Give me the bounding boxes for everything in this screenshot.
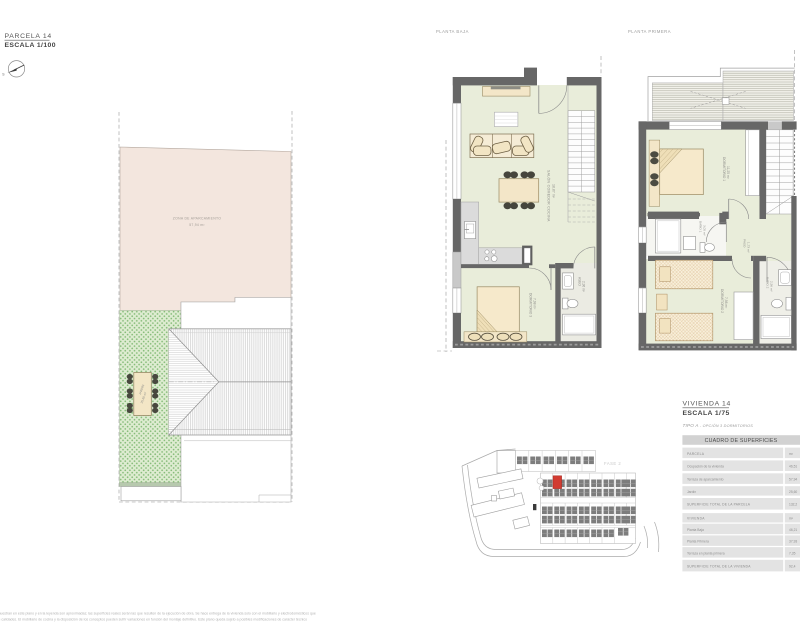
svg-text:57,94 m²: 57,94 m² — [189, 223, 205, 227]
svg-text:7,98 m²: 7,98 m² — [533, 298, 537, 310]
svg-text:DORMITORIO 2: DORMITORIO 2 — [720, 289, 724, 313]
svg-text:FASE 2: FASE 2 — [604, 461, 621, 466]
svg-text:Planta Primera: Planta Primera — [687, 540, 709, 544]
svg-text:7,98 m²: 7,98 m² — [724, 297, 728, 309]
svg-text:TIPO A - OPCIÓN 3 DORMITORIOS: TIPO A - OPCIÓN 3 DORMITORIOS — [683, 423, 754, 428]
svg-text:3,05 m²: 3,05 m² — [703, 225, 707, 236]
svg-text:VIVIENDA 14: VIVIENDA 14 — [683, 401, 732, 408]
svg-text:46,21: 46,21 — [789, 528, 797, 532]
svg-text:SUPERFICIE TOTAL DE LA PARCELA: SUPERFICIE TOTAL DE LA PARCELA — [687, 503, 751, 507]
svg-text:25,60: 25,60 — [789, 490, 797, 494]
svg-text:morial de calidades. El mobili: morial de calidades. El mobiliario de co… — [0, 618, 307, 622]
svg-text:Ocupación de la vivienda: Ocupación de la vivienda — [687, 465, 724, 469]
svg-text:SALÓN COMEDOR COCINA: SALÓN COMEDOR COCINA — [547, 170, 552, 222]
svg-text:DORMITORIO 3: DORMITORIO 3 — [529, 293, 533, 317]
svg-text:VIVIENDA: VIVIENDA — [687, 517, 705, 521]
svg-text:Jardín: Jardín — [687, 490, 696, 494]
svg-text:92,4: 92,4 — [789, 564, 796, 568]
svg-text:Terraza en planta primera: Terraza en planta primera — [687, 551, 725, 555]
svg-text:CUADRO DE SUPERFICIES: CUADRO DE SUPERFICIES — [705, 438, 778, 444]
svg-text:PARCELA 14: PARCELA 14 — [5, 33, 52, 40]
svg-text:que se muestran en este plano: que se muestran en este plano y en la le… — [0, 612, 316, 616]
svg-text:2,56 m²: 2,56 m² — [770, 281, 774, 292]
svg-text:46,51: 46,51 — [789, 465, 797, 469]
svg-text:Terraza de aparcamiento: Terraza de aparcamiento — [687, 478, 724, 482]
svg-text:132,2: 132,2 — [789, 503, 797, 507]
svg-text:PARCELA: PARCELA — [687, 452, 705, 456]
svg-text:18,87 m²: 18,87 m² — [552, 184, 556, 199]
svg-text:ASEO: ASEO — [578, 277, 582, 286]
svg-text:SUPERFICIE TOTAL DE LA VIVIEND: SUPERFICIE TOTAL DE LA VIVIENDA — [687, 564, 751, 568]
svg-text:57,94: 57,94 — [789, 478, 797, 482]
svg-text:11,25 m²: 11,25 m² — [726, 166, 730, 180]
svg-text:S: S — [2, 72, 5, 76]
svg-text:7,35: 7,35 — [789, 551, 796, 555]
svg-text:PASO: PASO — [743, 239, 747, 248]
svg-text:PLANTA PRIMERA: PLANTA PRIMERA — [628, 29, 671, 34]
svg-text:1,73 m²: 1,73 m² — [747, 242, 751, 253]
svg-text:DORMITORIO 1: DORMITORIO 1 — [722, 157, 726, 181]
svg-text:ESCALA 1/75: ESCALA 1/75 — [683, 410, 730, 417]
svg-text:37,93: 37,93 — [789, 540, 797, 544]
svg-text:ZONA DE APARCAMIENTO: ZONA DE APARCAMIENTO — [173, 217, 222, 221]
svg-text:ESCALA 1/100: ESCALA 1/100 — [5, 42, 56, 49]
svg-text:Planta Baja: Planta Baja — [687, 528, 704, 532]
svg-text:PLANTA BAJA: PLANTA BAJA — [436, 29, 469, 34]
svg-text:2,96 m²: 2,96 m² — [582, 281, 586, 292]
